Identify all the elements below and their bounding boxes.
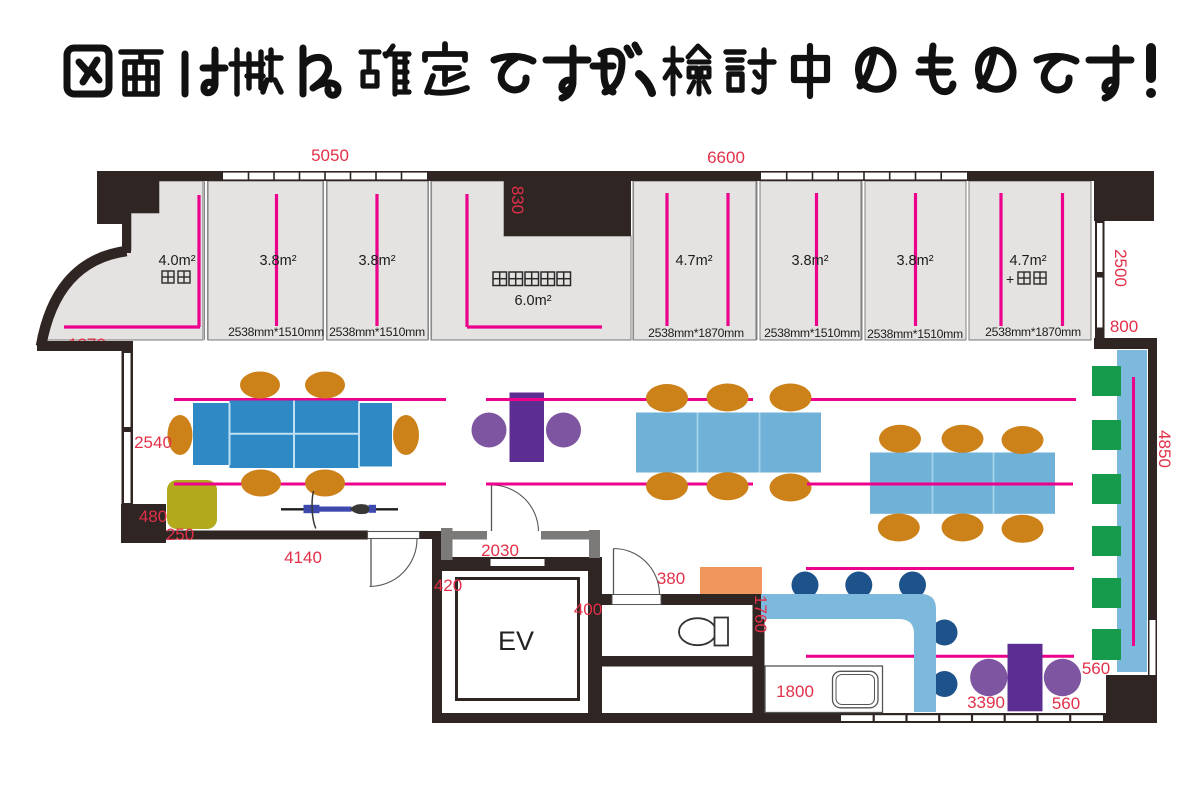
svg-text:3.8m²: 3.8m² [896,253,933,269]
svg-text:400: 400 [574,600,602,619]
svg-text:420: 420 [434,576,462,595]
svg-text:2030: 2030 [481,541,519,560]
svg-text:1800: 1800 [776,682,814,701]
svg-text:2540: 2540 [134,433,172,452]
svg-text:2538mm*1510mm: 2538mm*1510mm [228,325,324,339]
svg-text:4140: 4140 [284,548,322,567]
svg-text:250: 250 [166,525,194,544]
svg-text:560: 560 [1082,659,1110,678]
svg-text:2538mm*1510mm: 2538mm*1510mm [867,327,963,341]
svg-text:2538mm*1510mm: 2538mm*1510mm [329,325,425,339]
svg-text:2500: 2500 [1111,249,1130,287]
svg-text:EV: EV [498,626,534,656]
svg-text:1760: 1760 [751,595,770,633]
svg-text:3.8m²: 3.8m² [791,253,828,269]
svg-text:6600: 6600 [707,148,745,167]
svg-text:4.7m²: 4.7m² [675,253,712,269]
svg-text:+: + [1006,271,1014,287]
svg-text:830: 830 [508,186,527,214]
svg-text:2538mm*1870mm: 2538mm*1870mm [985,325,1081,339]
svg-text:380: 380 [657,569,685,588]
svg-text:2538mm*1510mm: 2538mm*1510mm [764,326,860,340]
svg-text:5050: 5050 [311,146,349,165]
svg-text:4.7m²: 4.7m² [1009,253,1046,269]
svg-text:480: 480 [139,507,167,526]
svg-text:3.8m²: 3.8m² [358,253,395,269]
svg-text:4850: 4850 [1155,430,1174,468]
svg-text:3.8m²: 3.8m² [259,253,296,269]
svg-text:2538mm*1870mm: 2538mm*1870mm [648,326,744,340]
svg-text:800: 800 [1110,317,1138,336]
svg-text:3390: 3390 [967,693,1005,712]
svg-text:560: 560 [1052,694,1080,713]
svg-text:4.0m²: 4.0m² [158,253,195,269]
svg-text:6.0m²: 6.0m² [514,293,551,309]
